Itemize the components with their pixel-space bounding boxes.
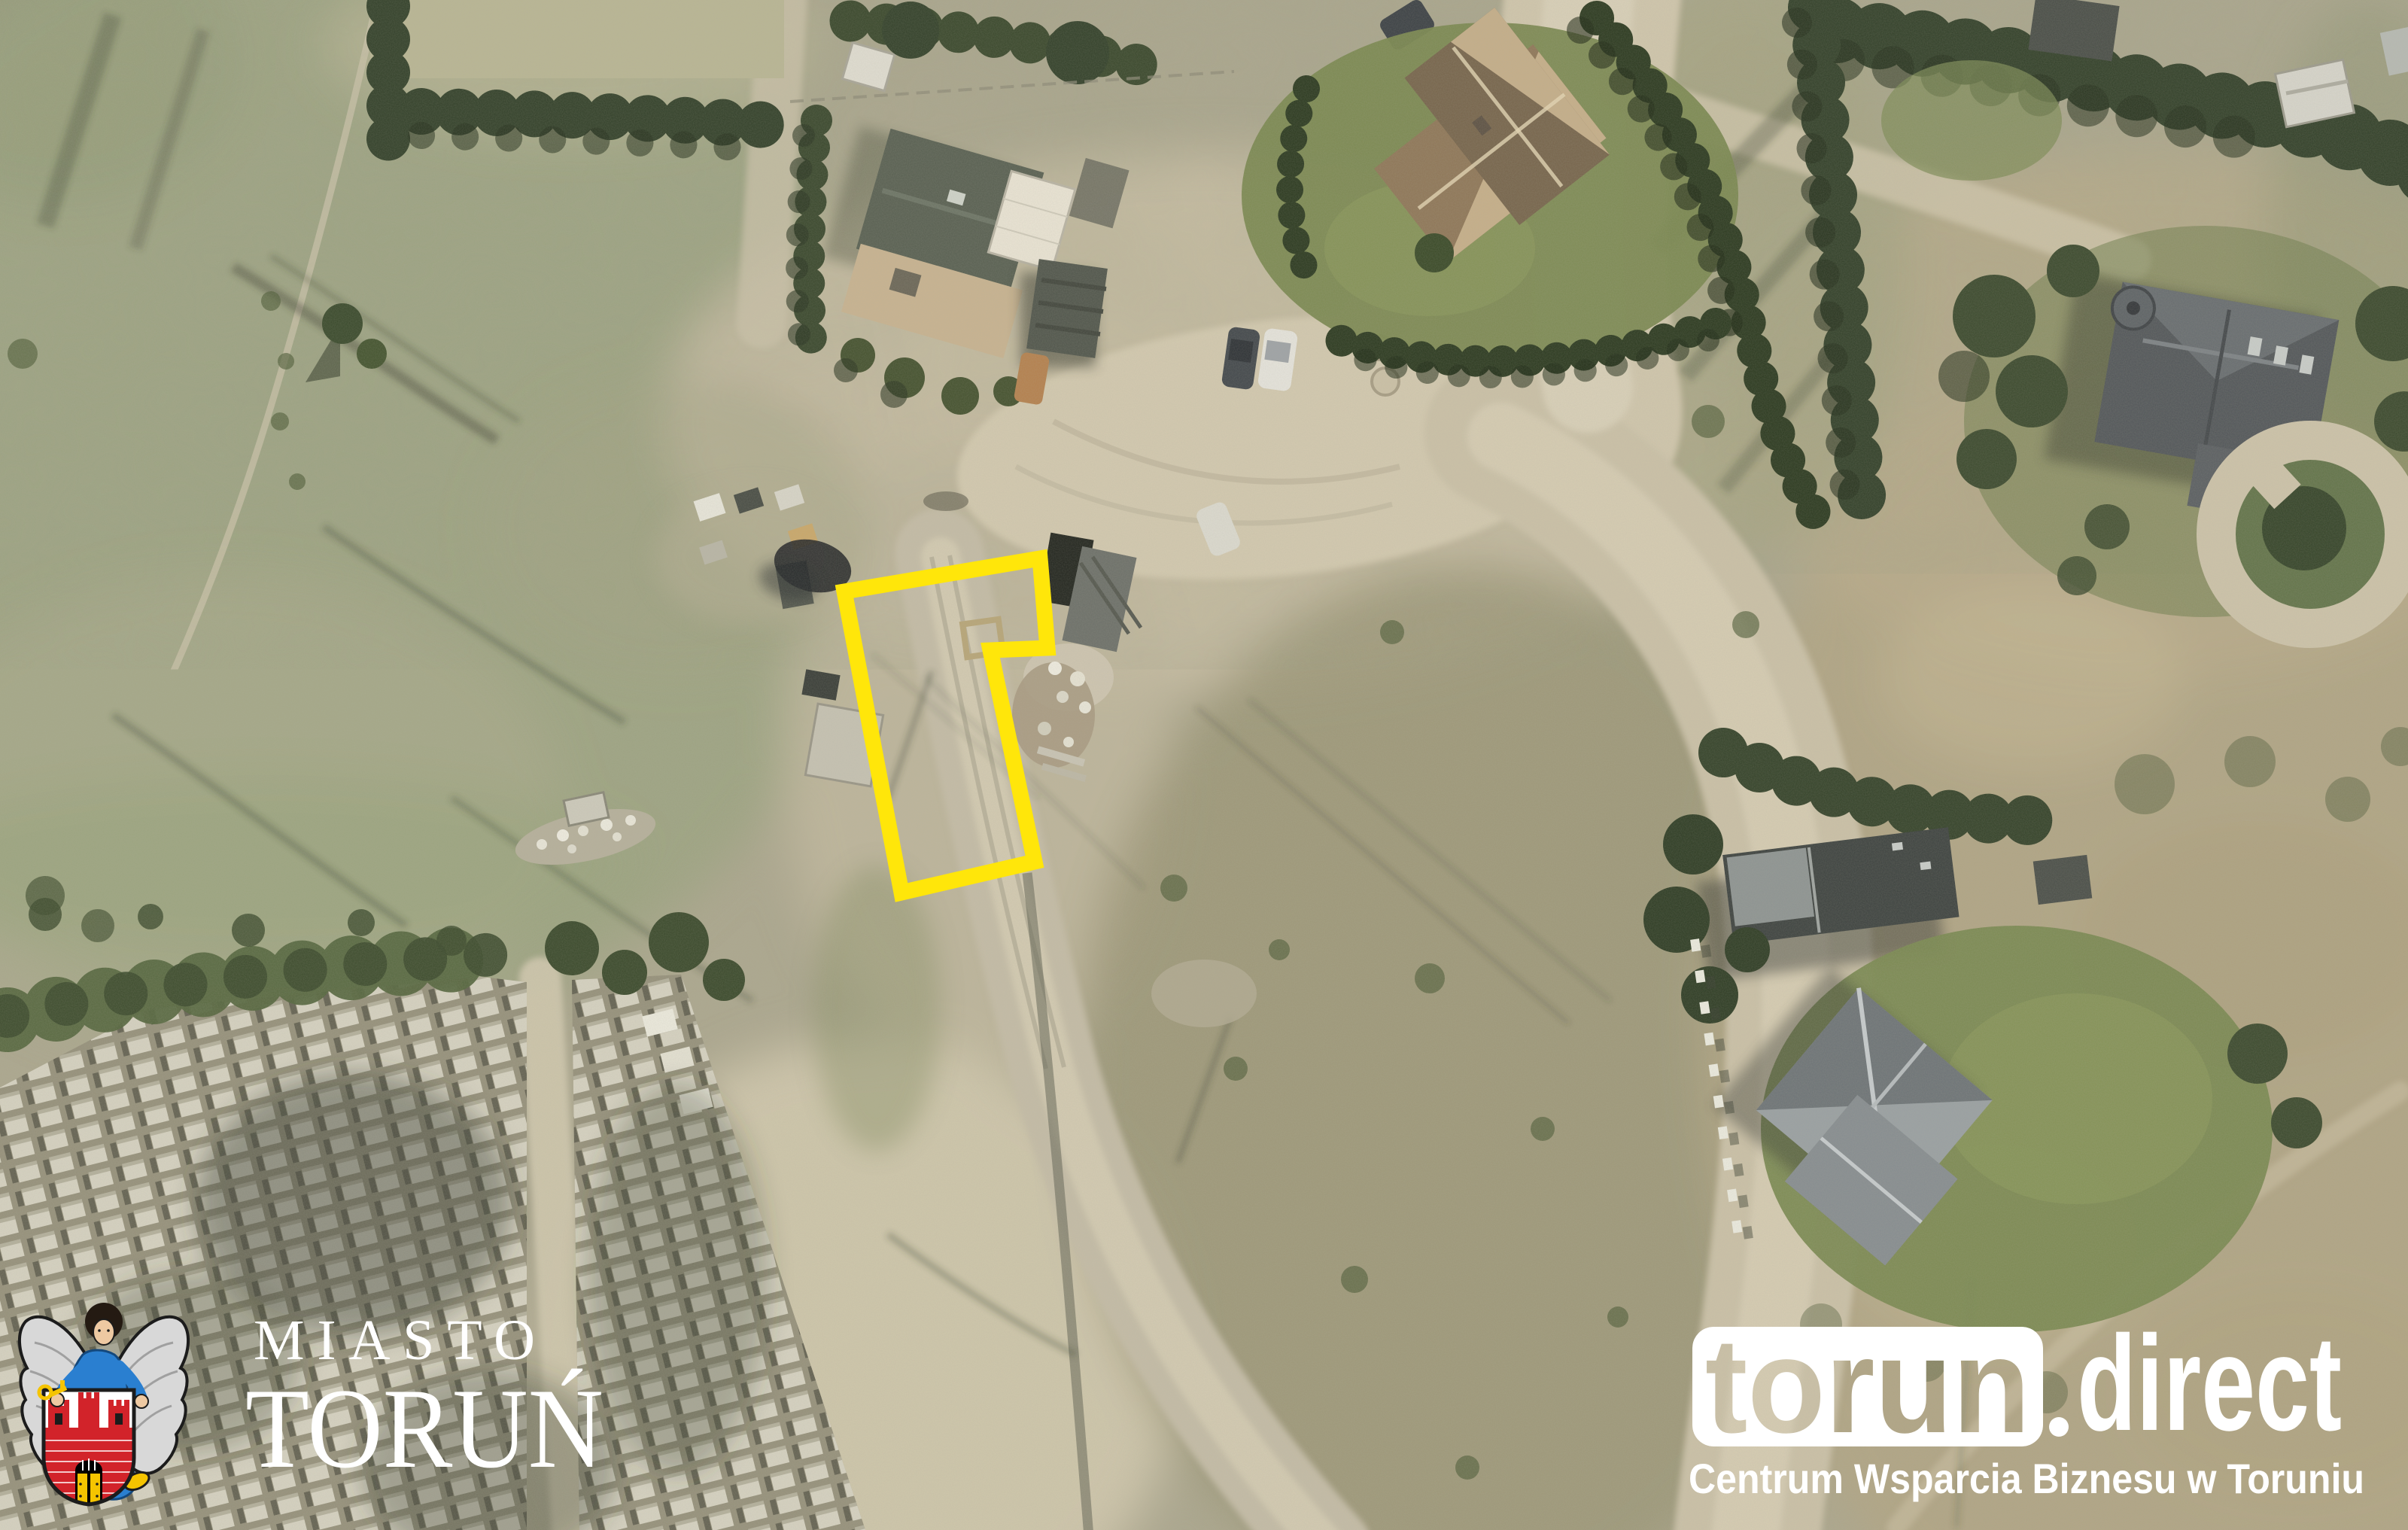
portal-logo-box [1692,1327,2043,1446]
portal-logo-tagline: Centrum Wsparcia Biznesu w Toruniu [1689,1455,2364,1502]
grain-overlay [0,0,2408,1530]
map-canvas: torun [0,0,2408,1530]
city-wordmark-line2: TORUŃ [245,1365,604,1492]
portal-logo-suffix: direct [2077,1308,2342,1459]
screenshot-root: torun [0,0,2408,1530]
shield [44,1390,134,1510]
portal-logo-dot [2049,1417,2069,1437]
portal-logo: direct Centrum Wsparcia Biznesu w Toruni… [1689,1308,2364,1502]
